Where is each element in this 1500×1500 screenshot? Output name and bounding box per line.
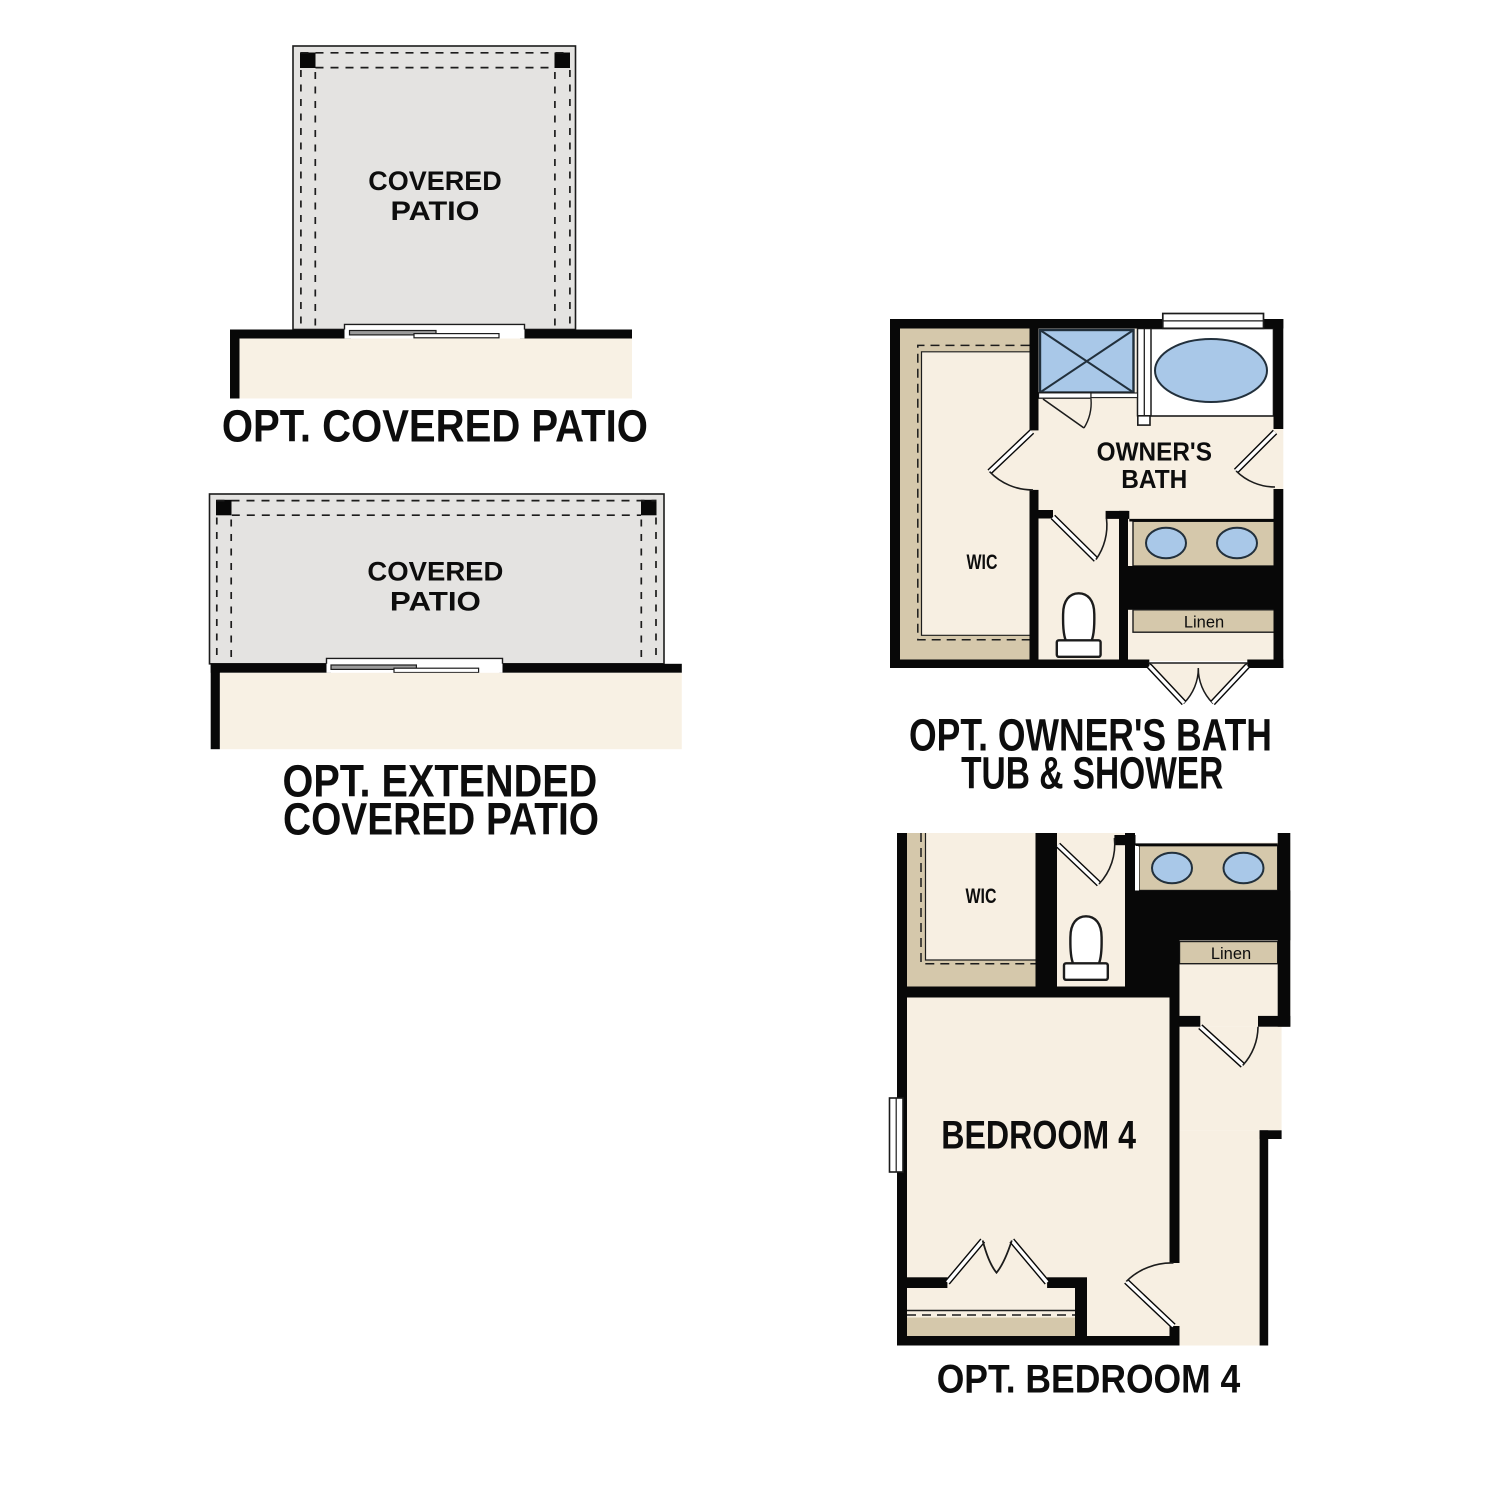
svg-text:OPT. COVERED PATIO: OPT. COVERED PATIO — [222, 401, 648, 452]
svg-text:OPT. BEDROOM 4: OPT. BEDROOM 4 — [937, 1357, 1241, 1401]
svg-text:OWNER'S: OWNER'S — [1097, 437, 1212, 467]
svg-text:PATIO: PATIO — [390, 587, 481, 617]
svg-text:BEDROOM 4: BEDROOM 4 — [941, 1114, 1136, 1158]
svg-text:TUB & SHOWER: TUB & SHOWER — [961, 748, 1223, 799]
svg-text:WIC: WIC — [967, 551, 998, 574]
svg-text:COVERED PATIO: COVERED PATIO — [283, 793, 599, 844]
svg-text:BATH: BATH — [1121, 464, 1187, 494]
svg-text:WIC: WIC — [966, 885, 997, 908]
svg-text:PATIO: PATIO — [391, 196, 480, 226]
svg-text:COVERED: COVERED — [368, 166, 501, 196]
svg-text:Linen: Linen — [1184, 614, 1224, 632]
svg-text:COVERED: COVERED — [367, 557, 503, 587]
svg-text:Linen: Linen — [1211, 945, 1251, 963]
